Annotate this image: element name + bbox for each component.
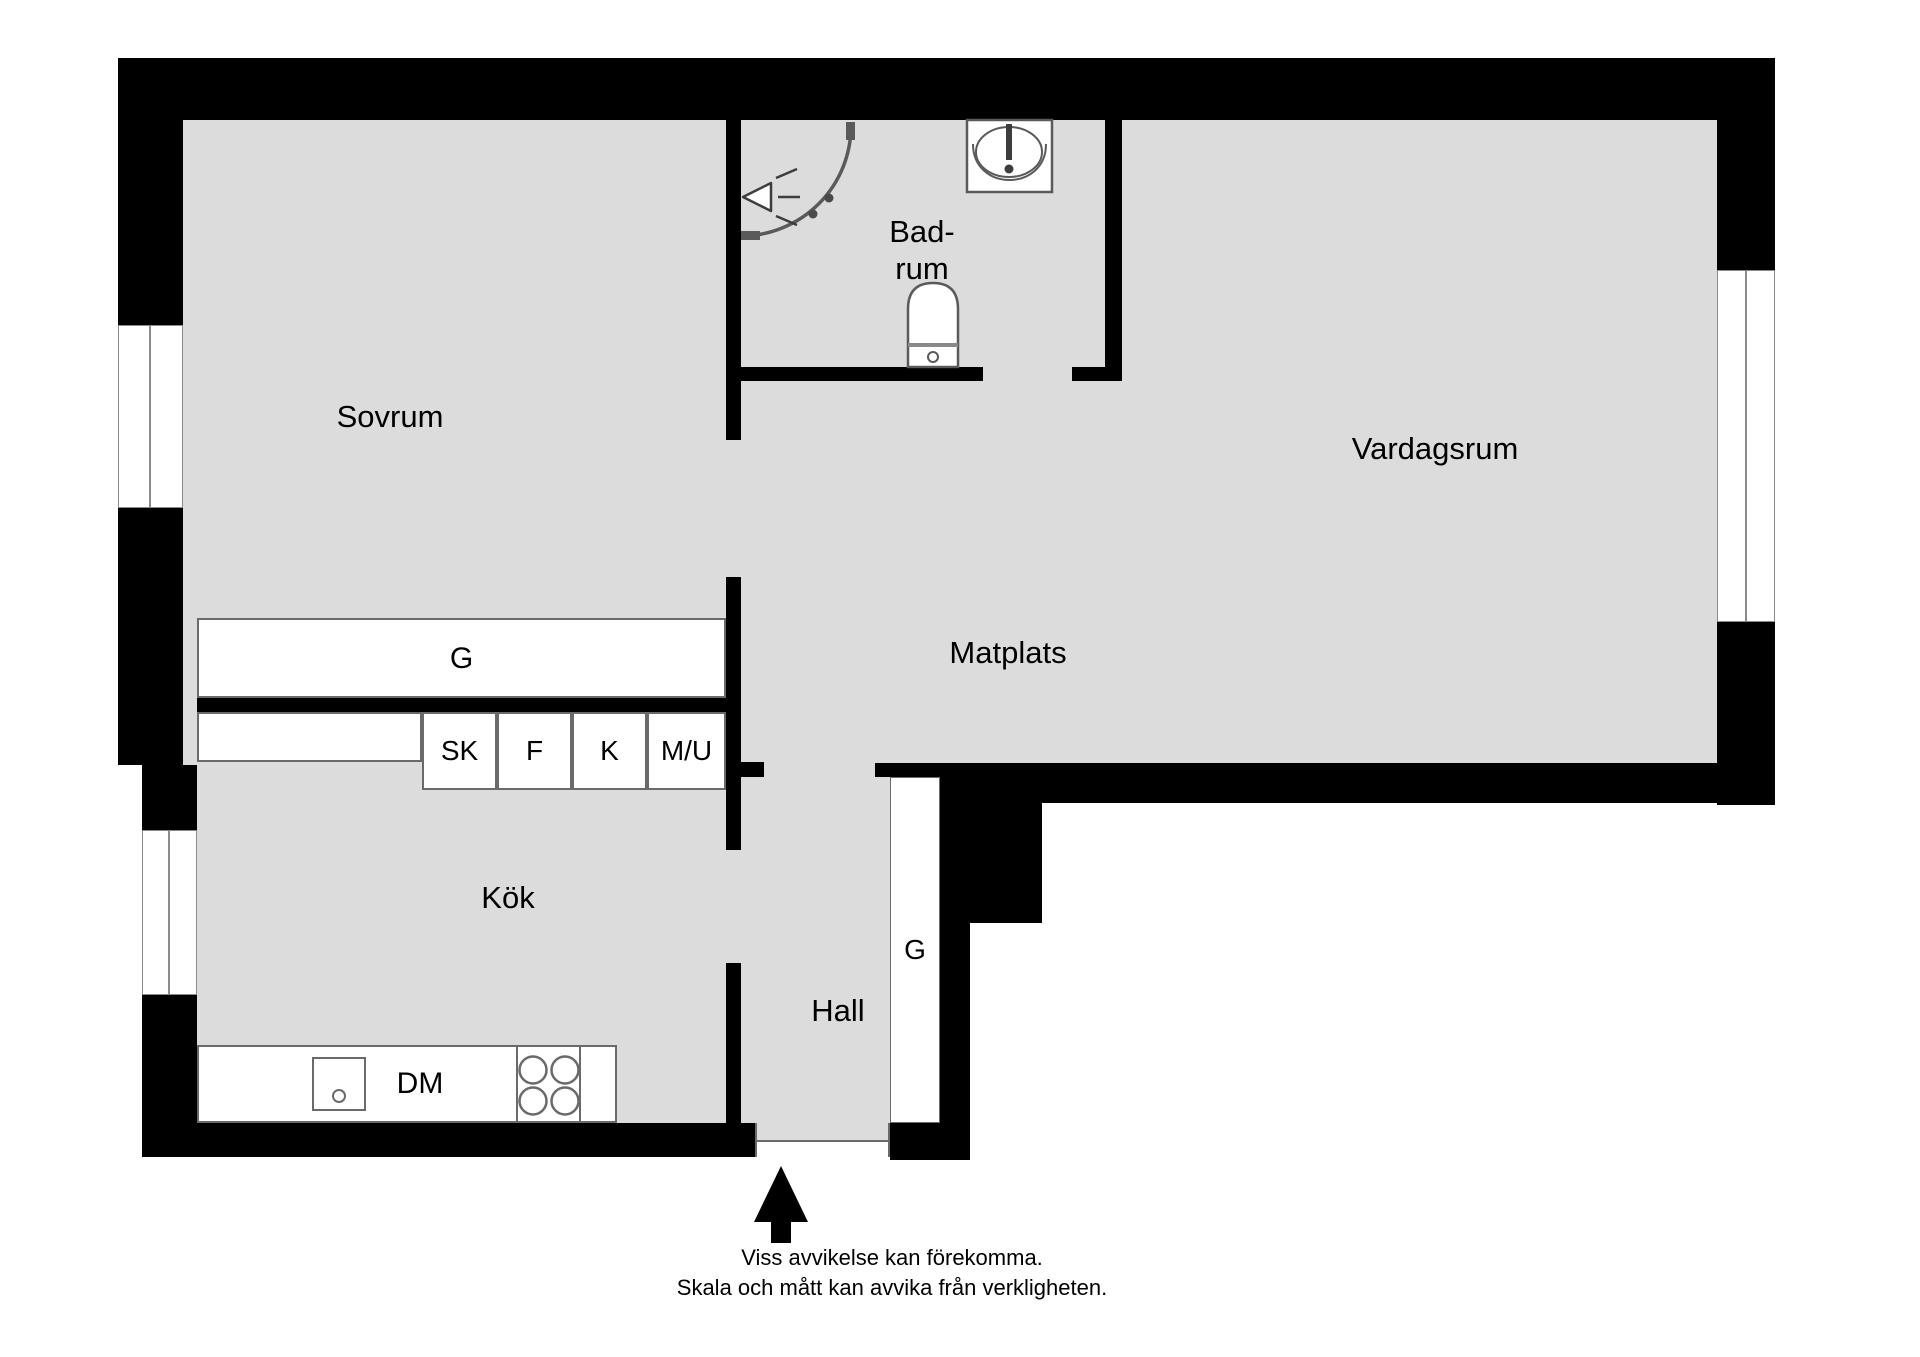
window-icon: [118, 325, 183, 508]
wall-sovrum-badrum: [726, 120, 741, 440]
floor-plan: G SK F K M/U DM G Sovrum Vardagsrum Matp…: [0, 0, 1920, 1357]
cabinet-mu-label: M/U: [647, 712, 726, 790]
cabinet-f-label: F: [497, 712, 572, 790]
room-label-sovrum: Sovrum: [290, 396, 490, 436]
wall-badrum-vardagsrum: [1105, 120, 1122, 381]
window-icon: [1717, 270, 1775, 622]
room-hall-floor: [726, 765, 890, 1142]
counter-divider: [579, 1045, 581, 1123]
room-label-hall: Hall: [738, 990, 938, 1030]
wall-matplats-south-thin: [875, 763, 940, 777]
wall-kok-door-jamb: [741, 762, 764, 777]
entrance-door-line: [757, 1140, 888, 1142]
kitchen-counter-upper: [197, 712, 422, 762]
wardrobe-row-label: G: [197, 618, 726, 698]
entrance-door-sill: [757, 1123, 888, 1140]
room-label-vardagsrum: Vardagsrum: [1315, 428, 1555, 468]
wall-bottom-left: [142, 1123, 755, 1157]
wall-top: [118, 58, 1775, 120]
window-pane-line: [149, 326, 151, 507]
entrance-door-jamb-right: [888, 1123, 890, 1157]
room-label-matplats: Matplats: [908, 632, 1108, 672]
wall-badrum-south: [726, 367, 983, 381]
entrance-arrow-icon: [754, 1166, 808, 1243]
disclaimer-line2: Skala och mått kan avvika från verklighe…: [492, 1273, 1292, 1303]
window-icon: [142, 830, 197, 995]
window-pane-line: [1745, 271, 1747, 621]
wall-sovrum-kok: [197, 698, 726, 712]
cabinet-k-label: K: [572, 712, 647, 790]
room-label-kok: Kök: [408, 877, 608, 917]
wall-hall-west-lower: [726, 963, 741, 1123]
wall-kok-divider-upper: [726, 577, 741, 850]
room-label-badrum-line1: Bad-: [889, 213, 954, 250]
wall-hall-east-post: [940, 763, 1042, 923]
cabinet-sk-label: SK: [422, 712, 497, 790]
window-pane-line: [168, 831, 170, 994]
disclaimer-text: Viss avvikelse kan förekomma. Skala och …: [492, 1243, 1292, 1303]
counter-divider: [516, 1045, 518, 1123]
room-label-badrum: Bad- rum: [852, 213, 992, 287]
room-label-badrum-line2: rum: [895, 250, 948, 287]
wall-bottom-right: [890, 1123, 970, 1160]
wall-vardagsrum-south: [1042, 763, 1775, 803]
wardrobe-hall-closet-label: G: [890, 777, 940, 1123]
cabinet-dm-label: DM: [370, 1045, 470, 1123]
disclaimer-line1: Viss avvikelse kan förekomma.: [492, 1243, 1292, 1273]
wall-closet-east: [940, 923, 970, 1123]
